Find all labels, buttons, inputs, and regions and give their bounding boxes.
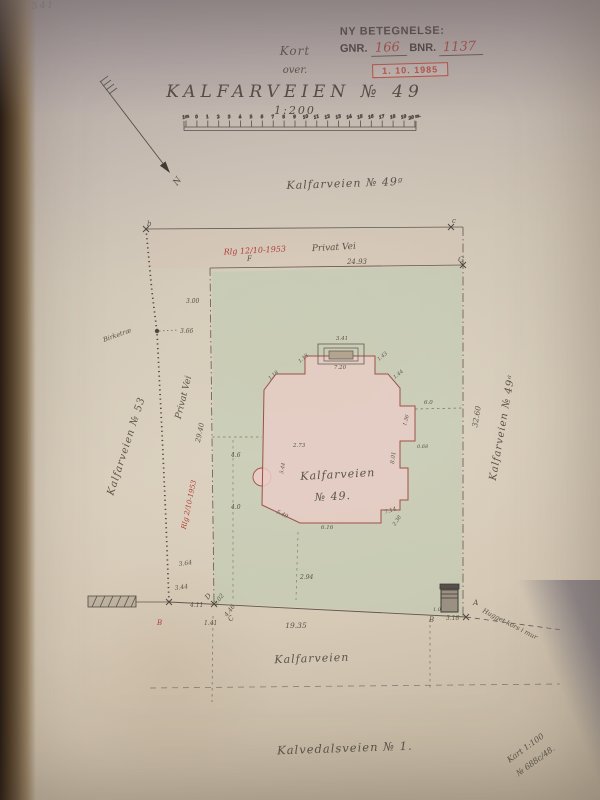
survey-point-letter: b [147, 220, 152, 228]
survey-point-letter: A [472, 598, 479, 607]
scale-tick-label: 17 [379, 114, 386, 120]
scale-tick-label: 14 [346, 114, 353, 120]
scale-tick-label: 0 [195, 115, 199, 121]
dimension-label: 24.93 [346, 258, 368, 266]
street-label: Kalfarveien № 49ᵍ [285, 175, 403, 192]
scale-tick-label: 15 [357, 114, 364, 120]
dimension-label: 3.18 [446, 615, 460, 622]
dimension-label: 6.16 [321, 525, 334, 531]
dimension-label: 3.00 [186, 298, 200, 305]
scale-tick-label: 4 [237, 115, 242, 121]
street-label: Kalfarveien [273, 651, 349, 667]
dimension-label: 3.64 [178, 559, 192, 568]
scale-tick-label: 12 [324, 114, 331, 120]
scale-tick-label: 8 [282, 115, 286, 121]
stone-wall [88, 596, 136, 607]
scale-tick-label: 5 [249, 115, 253, 121]
dimension-label: 4.11 [189, 602, 203, 609]
scale-tick-label: 18 [390, 114, 397, 120]
street-label: Kalfarveien № 49ᵃ [488, 374, 518, 483]
scale-tick-label: 2 [216, 115, 221, 121]
street-label: Kalfarveien № 53 [105, 396, 148, 498]
scale-bar: 1m01234567891011121314151617181920 m. [182, 114, 421, 131]
scale-tick-label: 19 [401, 114, 408, 120]
survey-point-letter: C [226, 614, 236, 624]
street-label: Kalvedalsveien № 1. [276, 739, 413, 758]
dimension-label: 0.68 [417, 444, 428, 450]
privat-vei-wash [146, 230, 463, 268]
dimension-label: 19.35 [285, 621, 307, 630]
dimension-label: Hugget kors i mur [480, 606, 539, 642]
dimension-label: 3.44 [174, 583, 188, 592]
birch-tie-line [159, 330, 178, 331]
dimension-label: 3.41 [336, 336, 348, 342]
scale-tick-label: 1m [182, 114, 190, 121]
dimension-label: 4.6 [230, 452, 241, 459]
north-arrow: N [100, 76, 185, 189]
survey-point-letter: B [156, 619, 162, 627]
boundary-top [146, 227, 463, 229]
dimension-label: 3.66 [180, 328, 194, 335]
survey-point-letter: D [203, 592, 214, 603]
scale-tick-label: 11 [313, 114, 320, 120]
dimension-label: 1.0 [433, 607, 442, 613]
street-edge-dashed [150, 684, 560, 688]
dimension-label: 2.94 [299, 574, 314, 581]
scale-tick-label: 6 [260, 115, 264, 121]
dimension-label: Rlg 2/10-1953 [180, 479, 199, 531]
north-label: N [171, 175, 185, 189]
survey-point-letter: G [458, 255, 464, 264]
construction-line [212, 616, 213, 702]
scanned-map-page: 541 NY BETEGNELSE: GNR. 166 BNR. 1137 1.… [0, 0, 600, 800]
street-label: № 49. [313, 489, 351, 504]
dimension-label: 2.73 [292, 443, 306, 449]
scale-tick-label: 7 [271, 115, 275, 121]
scale-tick-label: 20 m. [407, 114, 421, 122]
shed-building [440, 584, 459, 612]
veranda-stairs [329, 351, 353, 359]
dimension-label: Birketræ [101, 326, 132, 344]
dimension-label: 7.20 [334, 365, 347, 371]
survey-point-letter: B [428, 616, 434, 624]
survey-point-letter: c [452, 217, 456, 225]
dimension-label: 6.0 [424, 400, 433, 406]
scale-tick-label: 9 [293, 115, 297, 121]
survey-map-drawing: N 1m01234567891011121314151617181920 m. … [0, 0, 600, 800]
dimension-label: 29.40 [194, 421, 206, 444]
birch-tree-point [155, 329, 159, 333]
scale-tick-label: 1 [206, 115, 210, 121]
scale-tick-label: 16 [368, 114, 375, 120]
scale-tick-label: 13 [335, 114, 342, 120]
dimension-label: 4.0 [230, 504, 241, 511]
dimension-label: 32.60 [470, 405, 483, 428]
scale-tick-label: 3 [228, 115, 232, 121]
dimension-label: 1.41 [204, 620, 217, 627]
scale-tick-label: 10 [302, 114, 309, 120]
boundary-left-fence [146, 229, 169, 602]
dimension-label: Privat Vei [174, 375, 195, 421]
